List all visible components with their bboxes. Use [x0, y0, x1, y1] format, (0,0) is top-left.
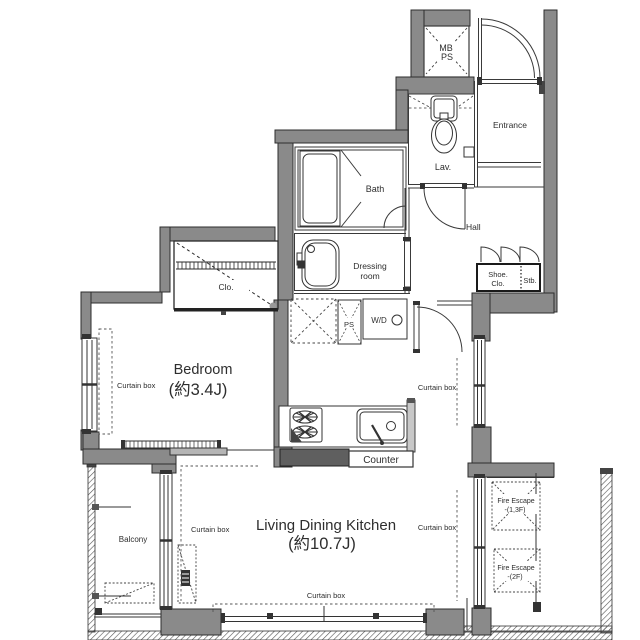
svg-text:Counter: Counter — [363, 455, 399, 466]
svg-text:Entrance: Entrance — [493, 120, 527, 130]
svg-text:Shoe.: Shoe. — [488, 270, 508, 279]
svg-text:Clo.: Clo. — [218, 282, 233, 292]
svg-text:room: room — [360, 271, 379, 281]
svg-text:(約3.4J): (約3.4J) — [169, 380, 228, 399]
svg-text:Living Dining Kitchen: Living Dining Kitchen — [256, 517, 396, 534]
svg-text:Fire Escape: Fire Escape — [497, 565, 534, 572]
svg-text:Bedroom: Bedroom — [174, 362, 233, 378]
svg-text:Curtain box: Curtain box — [418, 523, 457, 532]
svg-text:(約10.7J): (約10.7J) — [288, 534, 356, 553]
svg-text:PS: PS — [344, 320, 354, 329]
svg-text:PS: PS — [441, 52, 453, 62]
svg-text:Balcony: Balcony — [119, 535, 147, 544]
svg-text:W/D: W/D — [371, 316, 387, 325]
svg-text:Curtain box: Curtain box — [307, 591, 346, 600]
svg-text:Dressing: Dressing — [353, 261, 387, 271]
svg-text:Clo.: Clo. — [491, 279, 504, 288]
svg-text:-(1,3F): -(1,3F) — [505, 507, 526, 514]
svg-text:Stb.: Stb. — [523, 276, 536, 285]
svg-text:Curtain box: Curtain box — [117, 381, 156, 390]
svg-text:Curtain box: Curtain box — [191, 525, 230, 534]
svg-text:Lav.: Lav. — [435, 162, 451, 172]
svg-text:Bath: Bath — [366, 184, 385, 194]
svg-text:-(2F): -(2F) — [507, 574, 522, 581]
svg-text:Hall: Hall — [466, 222, 481, 232]
svg-text:Curtain box: Curtain box — [418, 383, 457, 392]
svg-text:Fire Escape: Fire Escape — [497, 498, 534, 505]
